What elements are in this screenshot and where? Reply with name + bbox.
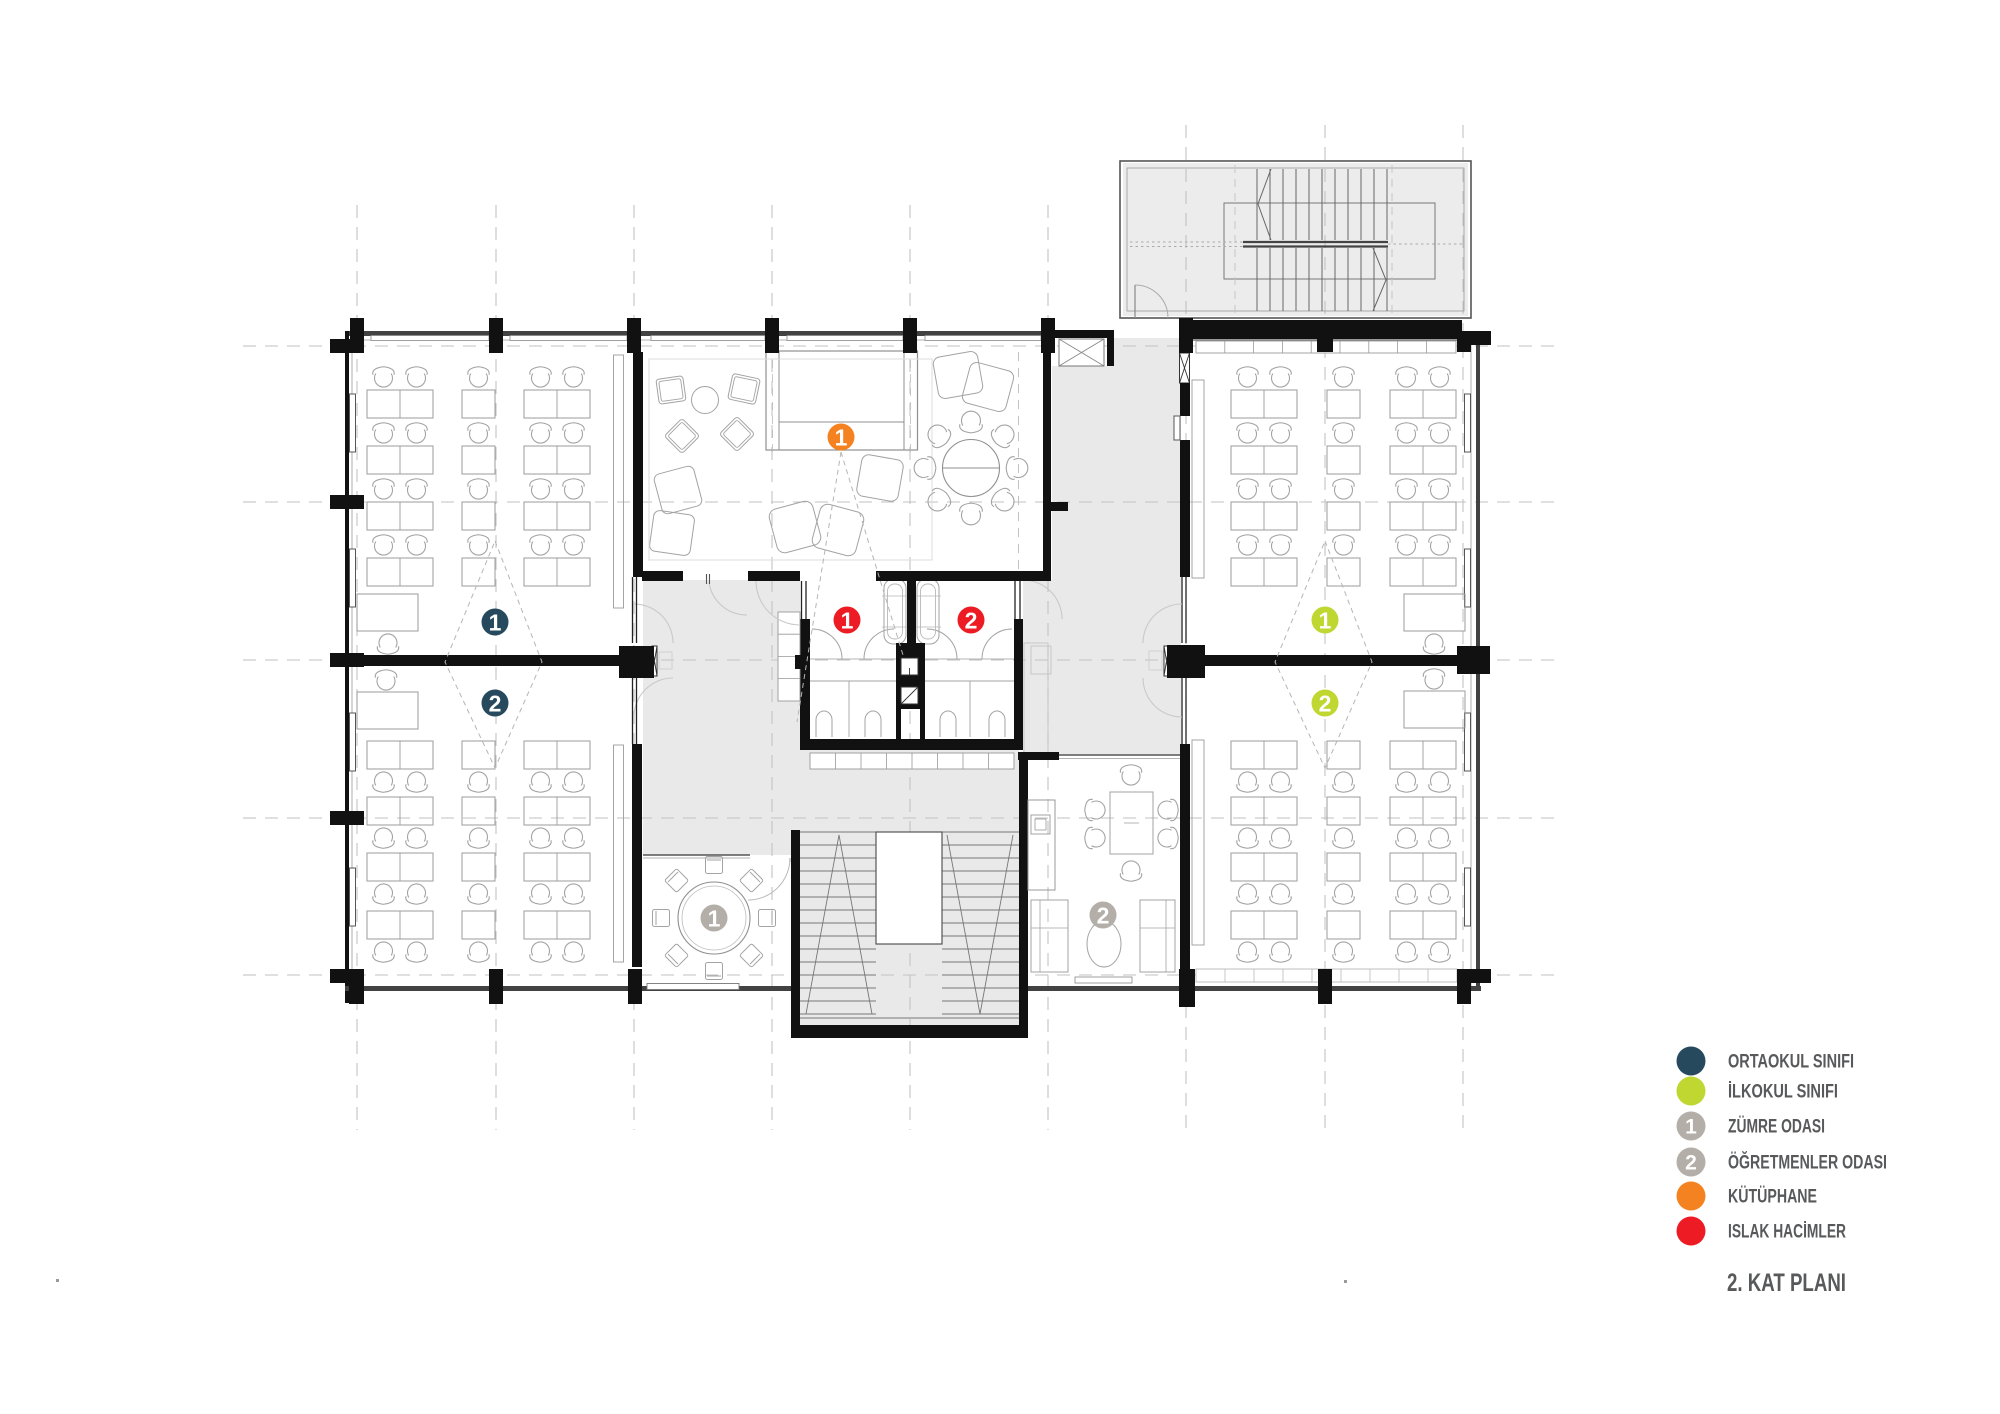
svg-text:2: 2: [1685, 1152, 1697, 1175]
svg-text:1: 1: [1685, 1116, 1697, 1139]
svg-text:1: 1: [1319, 607, 1332, 633]
svg-text:1: 1: [489, 609, 502, 635]
svg-text:2: 2: [1097, 902, 1110, 928]
svg-text:1: 1: [708, 905, 721, 931]
svg-text:1: 1: [841, 607, 854, 633]
svg-text:2: 2: [489, 690, 502, 716]
svg-text:KÜTÜPHANE: KÜTÜPHANE: [1728, 1187, 1817, 1208]
svg-text:1: 1: [835, 424, 848, 450]
svg-text:ISLAK HACİMLER: ISLAK HACİMLER: [1728, 1222, 1846, 1243]
svg-text:ÖĞRETMENLER ODASI: ÖĞRETMENLER ODASI: [1728, 1152, 1887, 1174]
svg-text:ZÜMRE ODASI: ZÜMRE ODASI: [1728, 1117, 1825, 1138]
svg-text:2: 2: [1319, 690, 1332, 716]
svg-text:2. KAT PLANI: 2. KAT PLANI: [1727, 1269, 1846, 1297]
svg-text:İLKOKUL SINIFI: İLKOKUL SINIFI: [1728, 1082, 1838, 1103]
svg-text:2: 2: [965, 607, 978, 633]
svg-text:ORTAOKUL SINIFI: ORTAOKUL SINIFI: [1728, 1052, 1854, 1073]
